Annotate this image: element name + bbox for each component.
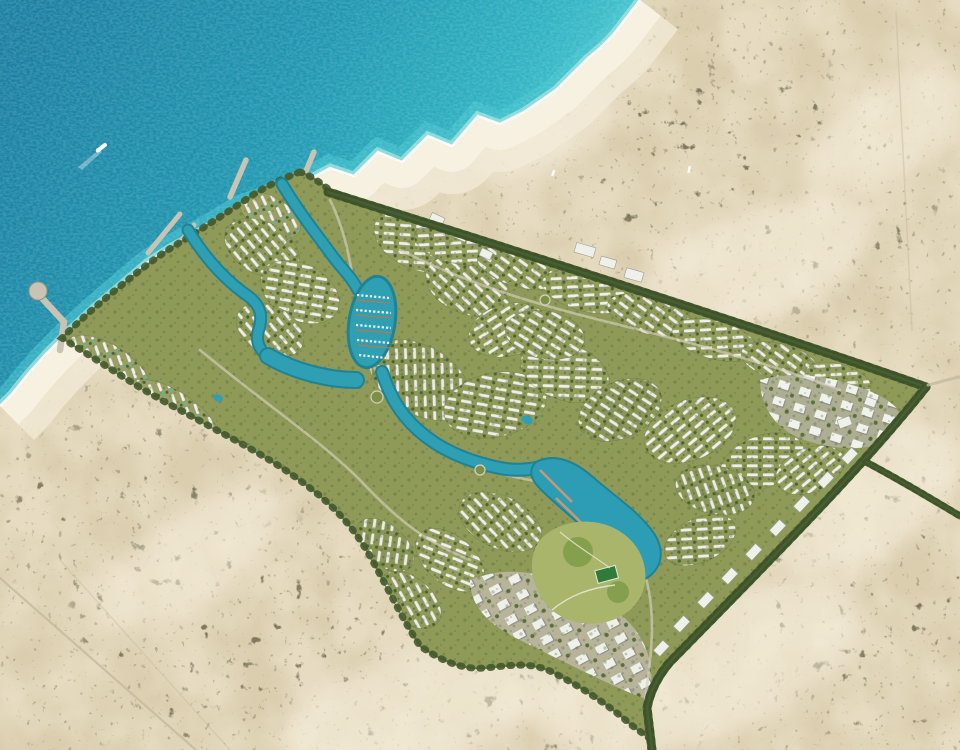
park-lawn [563, 537, 593, 567]
roundabout [540, 295, 550, 305]
roundabout [371, 391, 383, 403]
roundabout [475, 465, 485, 475]
aerial-render [0, 0, 960, 750]
park-lawn [607, 581, 629, 603]
